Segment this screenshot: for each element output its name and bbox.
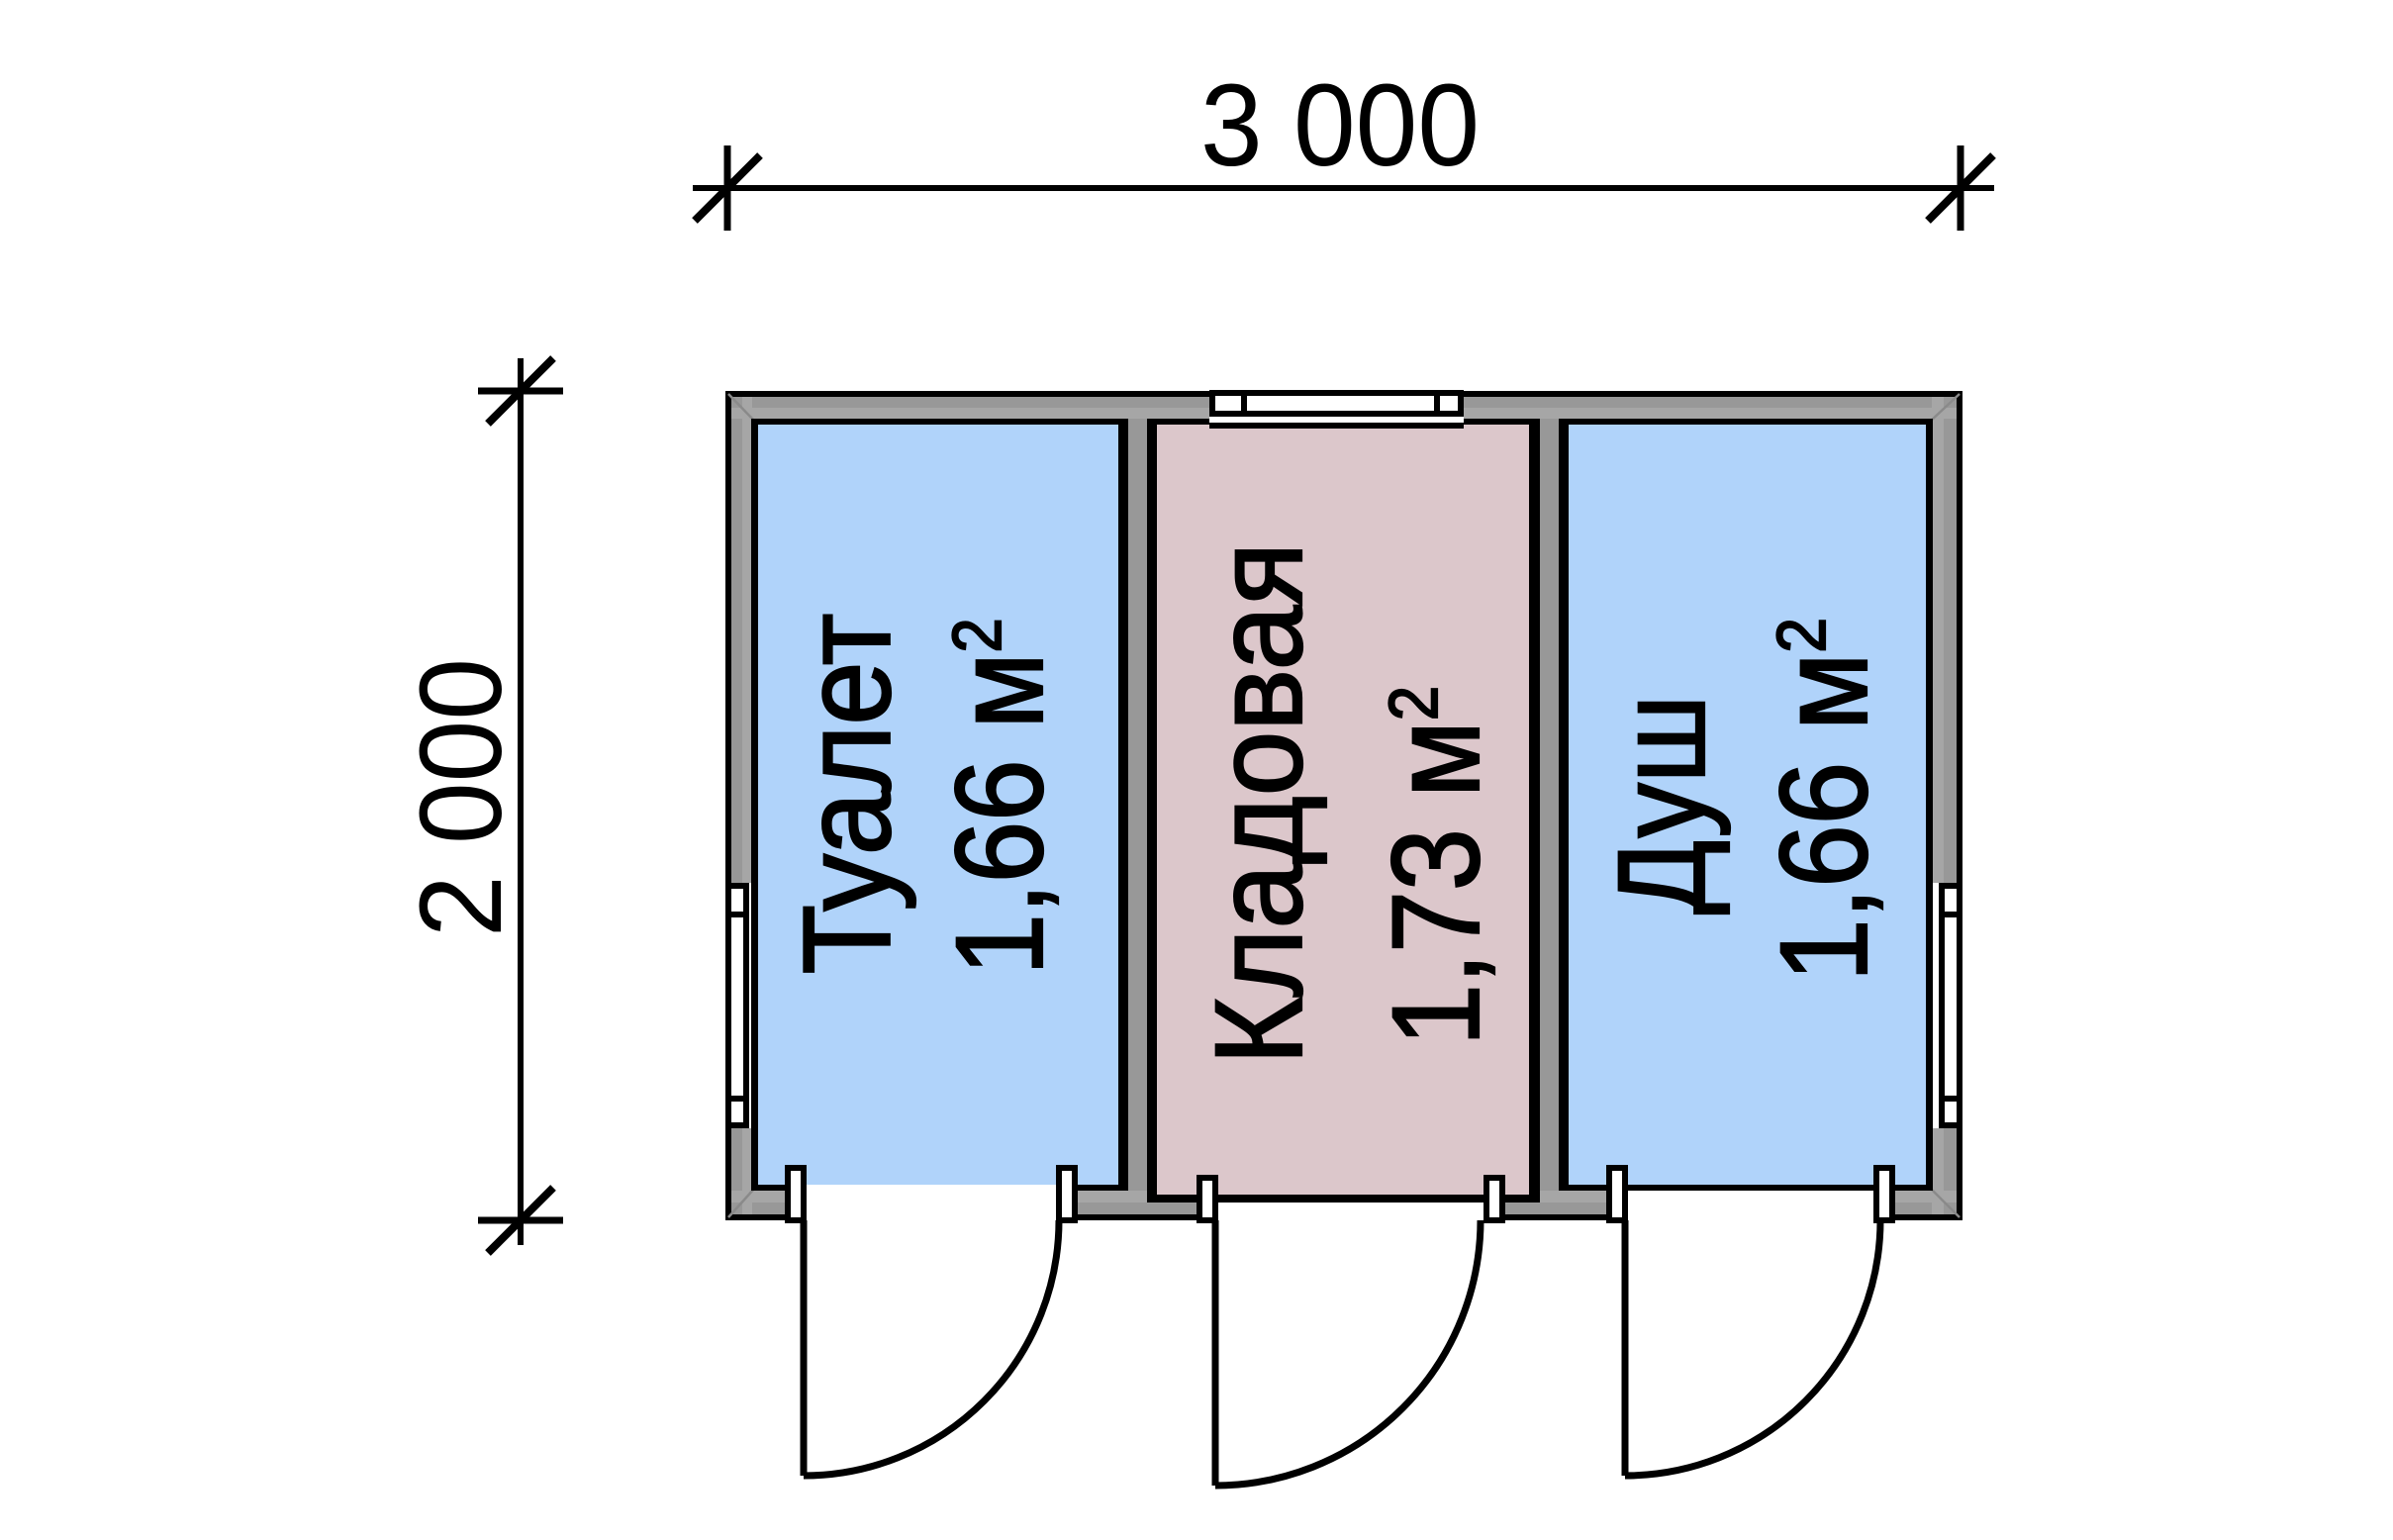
- svg-text:Кладовая: Кладовая: [1191, 542, 1328, 1065]
- svg-text:3 000: 3 000: [1200, 60, 1480, 191]
- svg-text:1,73 м2: 1,73 м2: [1368, 686, 1505, 1046]
- svg-text:1,66 м2: 1,66 м2: [931, 619, 1069, 976]
- svg-text:Душ: Душ: [1593, 695, 1731, 914]
- svg-text:2 000: 2 000: [396, 658, 526, 937]
- svg-text:Туалет: Туалет: [779, 614, 916, 975]
- svg-text:1,66 м2: 1,66 м2: [1756, 618, 1893, 982]
